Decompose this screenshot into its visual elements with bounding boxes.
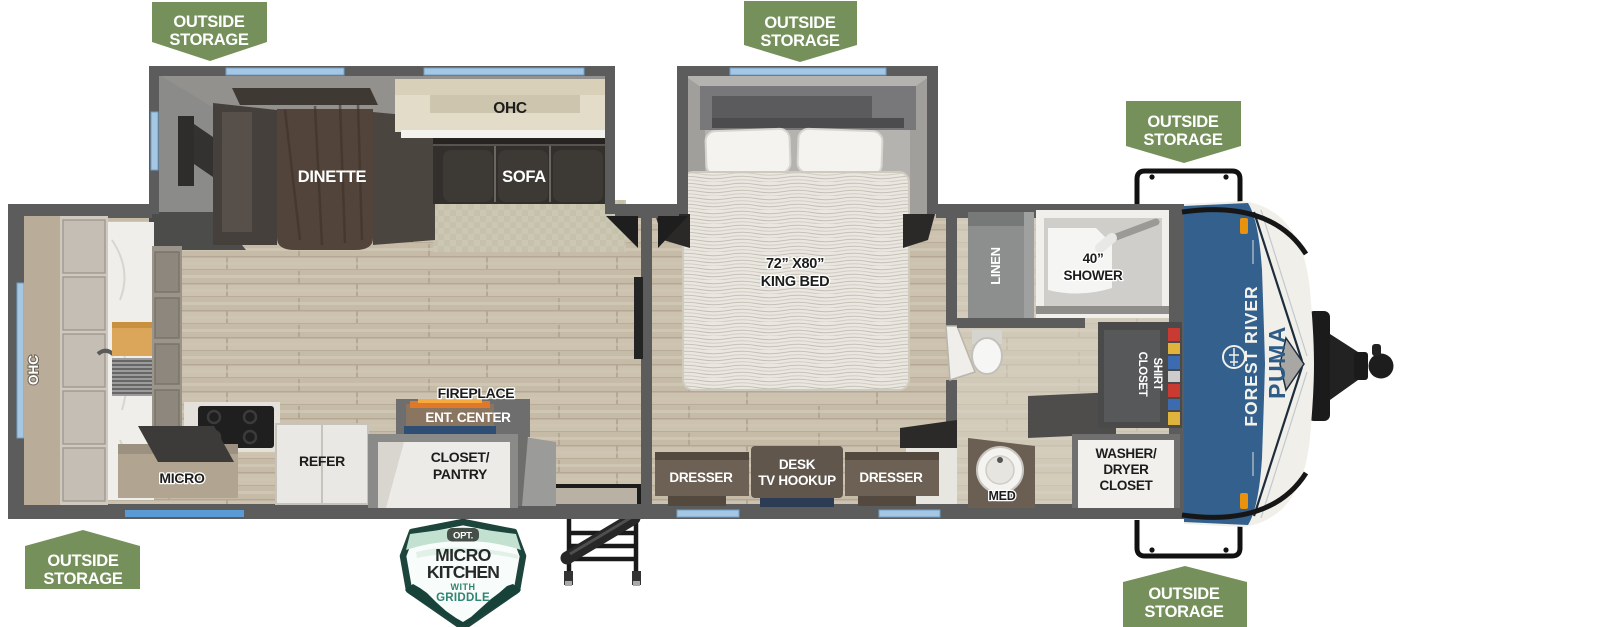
svg-text:SHIRT: SHIRT bbox=[1151, 357, 1163, 390]
svg-text:OUTSIDE: OUTSIDE bbox=[173, 13, 245, 31]
svg-text:STORAGE: STORAGE bbox=[169, 31, 248, 49]
svg-text:OPT.: OPT. bbox=[453, 531, 473, 542]
svg-text:LINEN: LINEN bbox=[988, 247, 1003, 285]
svg-text:CLOSET/: CLOSET/ bbox=[431, 449, 490, 465]
svg-text:DINETTE: DINETTE bbox=[298, 168, 367, 186]
svg-text:WITH: WITH bbox=[451, 582, 476, 592]
svg-text:OUTSIDE: OUTSIDE bbox=[764, 14, 836, 32]
svg-text:ENT. CENTER: ENT. CENTER bbox=[425, 410, 511, 425]
svg-text:WASHER/: WASHER/ bbox=[1096, 446, 1157, 461]
svg-text:OHC: OHC bbox=[493, 100, 527, 117]
svg-text:STORAGE: STORAGE bbox=[760, 32, 839, 50]
svg-text:OUTSIDE: OUTSIDE bbox=[47, 552, 119, 570]
svg-text:PUMA: PUMA bbox=[1264, 325, 1290, 399]
svg-text:STORAGE: STORAGE bbox=[1143, 131, 1222, 149]
svg-text:TV HOOKUP: TV HOOKUP bbox=[758, 473, 836, 488]
svg-text:40”: 40” bbox=[1083, 251, 1104, 266]
svg-text:MED: MED bbox=[989, 489, 1016, 503]
svg-text:MICRO: MICRO bbox=[159, 470, 205, 486]
svg-text:DRYER: DRYER bbox=[1103, 462, 1149, 477]
svg-text:SOFA: SOFA bbox=[502, 168, 546, 186]
svg-text:CLOSET: CLOSET bbox=[1136, 352, 1148, 397]
svg-text:72” X80”: 72” X80” bbox=[766, 256, 824, 272]
svg-text:KITCHEN: KITCHEN bbox=[427, 562, 499, 582]
svg-text:OHC: OHC bbox=[26, 355, 41, 385]
svg-text:STORAGE: STORAGE bbox=[1144, 603, 1223, 621]
svg-text:OUTSIDE: OUTSIDE bbox=[1148, 585, 1220, 603]
svg-text:FIREPLACE: FIREPLACE bbox=[438, 385, 515, 401]
svg-text:DRESSER: DRESSER bbox=[669, 470, 733, 485]
svg-text:FOREST RIVER: FOREST RIVER bbox=[1241, 285, 1261, 426]
svg-text:REFER: REFER bbox=[299, 453, 345, 469]
svg-text:STORAGE: STORAGE bbox=[43, 570, 122, 588]
svg-text:DRESSER: DRESSER bbox=[859, 470, 923, 485]
svg-text:KING BED: KING BED bbox=[761, 274, 830, 290]
svg-text:GRIDDLE: GRIDDLE bbox=[436, 592, 490, 604]
svg-text:CLOSET: CLOSET bbox=[1100, 478, 1154, 493]
svg-text:OUTSIDE: OUTSIDE bbox=[1147, 113, 1219, 131]
svg-text:PANTRY: PANTRY bbox=[433, 466, 488, 482]
svg-text:DESK: DESK bbox=[779, 457, 816, 472]
svg-text:SHOWER: SHOWER bbox=[1064, 268, 1124, 283]
